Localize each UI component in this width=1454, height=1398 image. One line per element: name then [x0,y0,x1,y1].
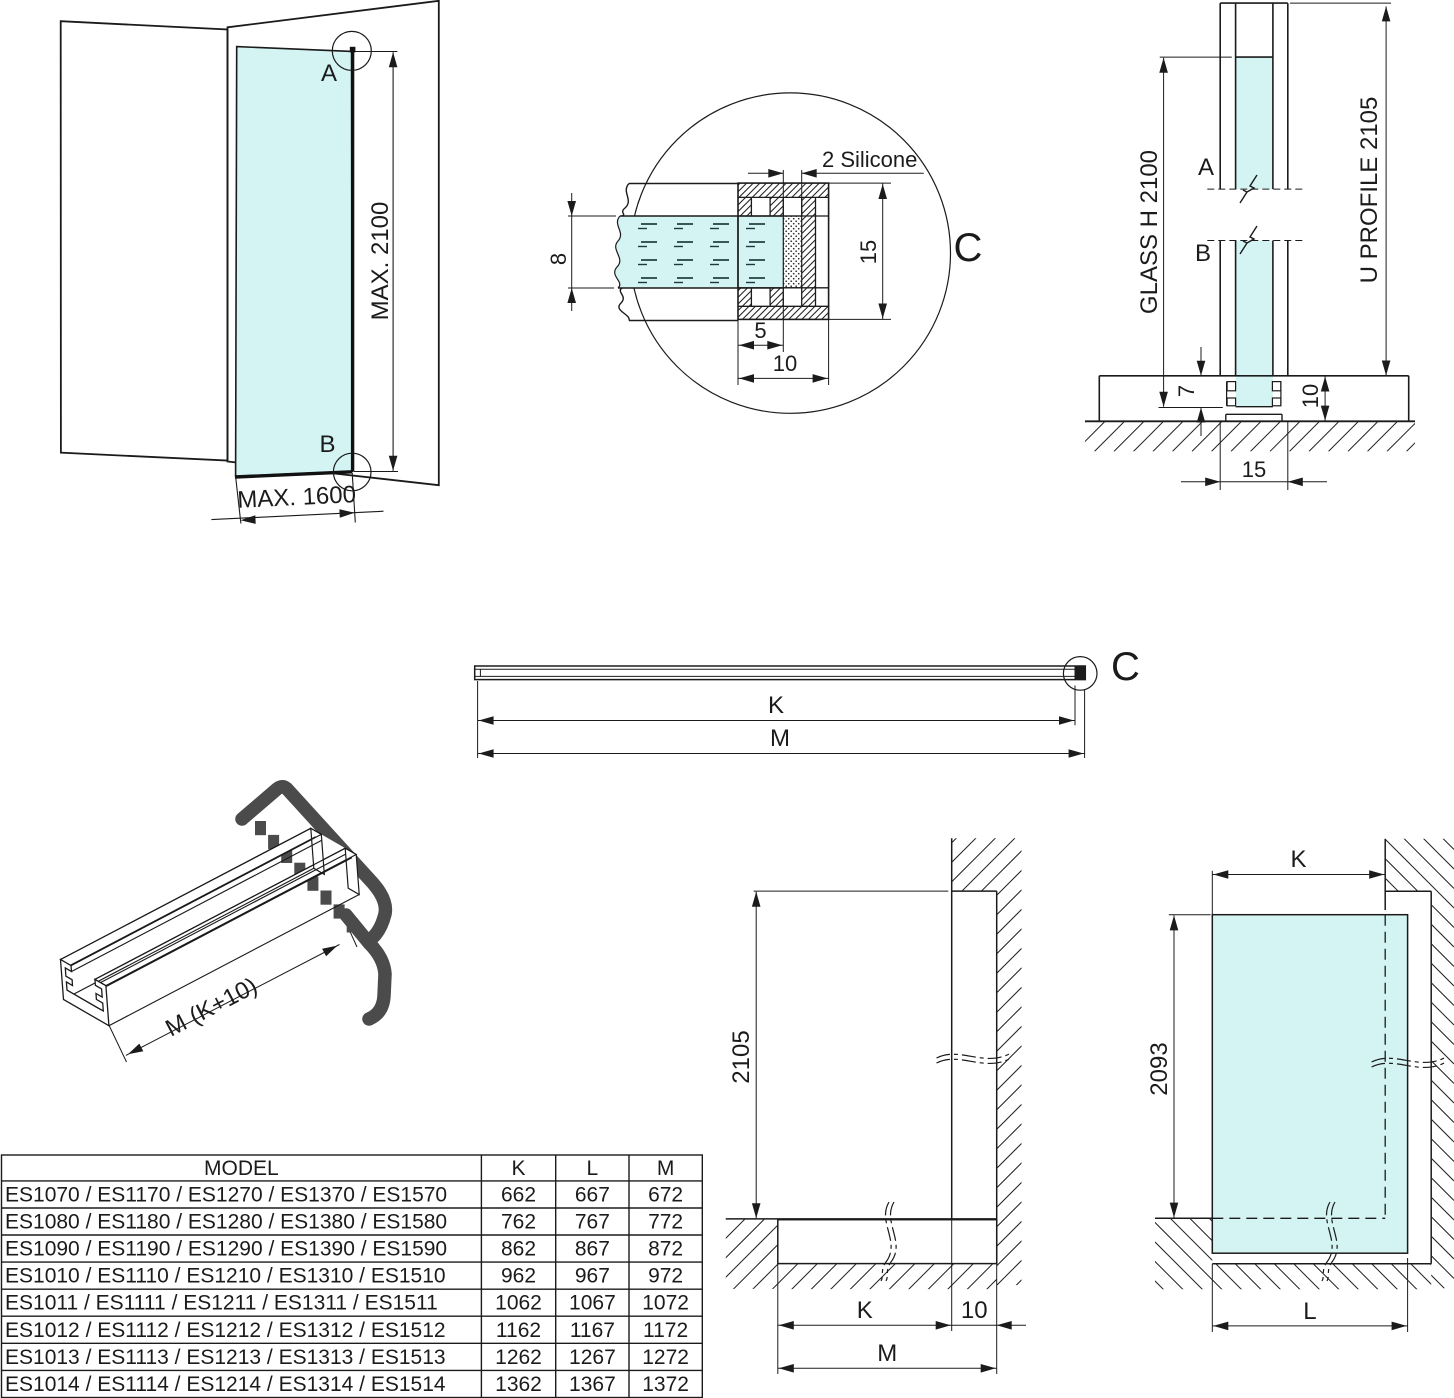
svg-text:A: A [1198,154,1214,181]
svg-text:862: 862 [501,1238,536,1261]
svg-text:K: K [1290,846,1306,873]
svg-text:15: 15 [856,240,881,264]
svg-text:772: 772 [648,1211,683,1234]
svg-text:GLASS H 2100: GLASS H 2100 [1136,150,1163,314]
svg-text:2105: 2105 [728,1030,755,1083]
svg-text:K: K [857,1297,873,1324]
svg-text:C: C [1111,645,1140,689]
svg-text:1262: 1262 [495,1346,542,1369]
svg-text:2 Silicone: 2 Silicone [822,147,917,172]
svg-text:1167: 1167 [570,1319,615,1342]
svg-text:A: A [321,60,337,87]
svg-text:ES1090 / ES1190 / ES1290 / ES1: ES1090 / ES1190 / ES1290 / ES1390 / ES15… [5,1238,447,1261]
svg-text:ES1080 / ES1180 / ES1280 / ES1: ES1080 / ES1180 / ES1280 / ES1380 / ES15… [5,1211,447,1234]
svg-text:ES1011 / ES1111 / ES1211 / ES1: ES1011 / ES1111 / ES1211 / ES1311 / ES15… [5,1292,438,1315]
svg-text:867: 867 [575,1238,610,1261]
svg-text:L: L [1303,1298,1316,1325]
svg-text:ES1070 / ES1170 / ES1270 / ES1: ES1070 / ES1170 / ES1270 / ES1370 / ES15… [5,1183,447,1206]
svg-text:2093: 2093 [1146,1042,1173,1095]
svg-text:667: 667 [575,1183,610,1206]
svg-text:MAX. 2100: MAX. 2100 [367,202,394,321]
svg-text:L: L [587,1157,599,1180]
svg-text:962: 962 [501,1265,536,1288]
svg-text:1372: 1372 [642,1373,689,1396]
svg-text:1272: 1272 [642,1346,689,1369]
svg-text:1367: 1367 [569,1373,616,1396]
svg-text:1267: 1267 [569,1346,616,1369]
svg-text:662: 662 [501,1183,536,1206]
svg-text:1067: 1067 [569,1292,616,1315]
svg-text:U PROFILE 2105: U PROFILE 2105 [1356,97,1383,284]
svg-text:B: B [319,431,335,458]
svg-text:10: 10 [1298,384,1323,408]
svg-text:1072: 1072 [642,1292,689,1315]
svg-text:7: 7 [1174,385,1199,397]
svg-text:ES1010 / ES1110 / ES1210 / ES1: ES1010 / ES1110 / ES1210 / ES1310 / ES15… [5,1265,446,1288]
svg-text:767: 767 [575,1211,610,1234]
svg-text:ES1013 / ES1113 / ES1213 / ES1: ES1013 / ES1113 / ES1213 / ES1313 / ES15… [5,1346,446,1369]
svg-text:762: 762 [501,1211,536,1234]
svg-text:M: M [770,725,790,752]
svg-text:1162: 1162 [496,1319,541,1342]
svg-text:ES1012 / ES1112 / ES1212 / ES1: ES1012 / ES1112 / ES1212 / ES1312 / ES15… [5,1319,446,1342]
svg-text:ES1014 / ES1114 / ES1214 / ES1: ES1014 / ES1114 / ES1214 / ES1314 / ES15… [5,1373,446,1396]
svg-text:872: 872 [648,1238,683,1261]
svg-text:972: 972 [648,1265,683,1288]
svg-text:672: 672 [648,1183,683,1206]
svg-text:5: 5 [754,318,766,343]
svg-text:M: M [877,1340,897,1367]
svg-text:K: K [768,692,784,719]
svg-text:1062: 1062 [495,1292,542,1315]
svg-text:967: 967 [575,1265,610,1288]
svg-text:1172: 1172 [643,1319,688,1342]
svg-text:M: M [657,1157,675,1180]
svg-text:B: B [1195,240,1211,267]
svg-text:8: 8 [546,253,571,265]
svg-text:MODEL: MODEL [204,1157,279,1180]
svg-text:10: 10 [773,351,797,376]
svg-text:C: C [954,226,983,270]
svg-text:15: 15 [1242,457,1266,482]
svg-text:1362: 1362 [495,1373,542,1396]
svg-text:10: 10 [961,1297,988,1324]
svg-text:K: K [511,1157,525,1180]
